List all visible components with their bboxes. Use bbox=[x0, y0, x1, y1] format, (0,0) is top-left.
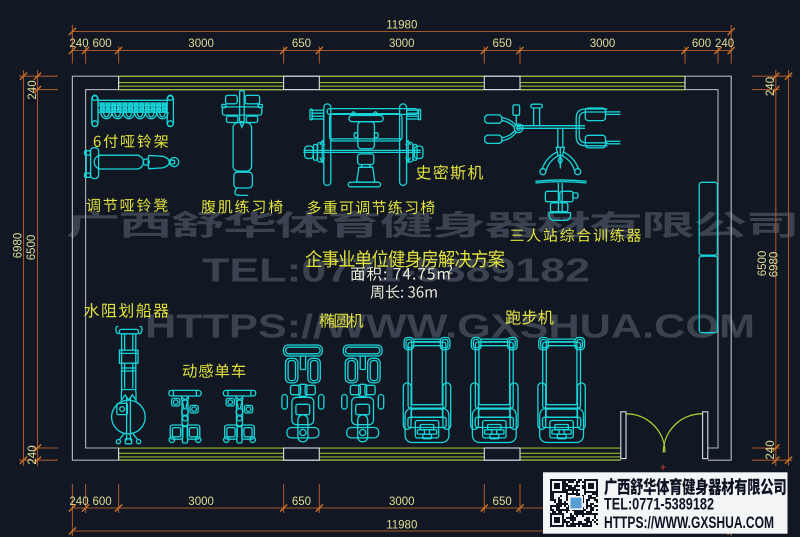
svg-text:TEL:0771-5389182: TEL:0771-5389182 bbox=[604, 495, 714, 514]
svg-text:240: 240 bbox=[765, 77, 777, 96]
svg-text:650: 650 bbox=[292, 38, 311, 50]
svg-text:240: 240 bbox=[69, 496, 88, 508]
svg-text:6500: 6500 bbox=[26, 235, 38, 261]
svg-text:600: 600 bbox=[692, 38, 711, 50]
svg-text:240: 240 bbox=[27, 445, 39, 464]
svg-text:240: 240 bbox=[69, 38, 88, 50]
svg-text:3000: 3000 bbox=[389, 38, 415, 50]
svg-text:3000: 3000 bbox=[389, 496, 415, 508]
svg-text:240: 240 bbox=[715, 38, 734, 50]
svg-text:3000: 3000 bbox=[590, 38, 616, 50]
svg-text:6980: 6980 bbox=[769, 252, 781, 278]
svg-text:11980: 11980 bbox=[386, 520, 417, 532]
svg-text:6980: 6980 bbox=[13, 233, 25, 259]
svg-text:3000: 3000 bbox=[188, 496, 214, 508]
svg-text:3000: 3000 bbox=[188, 38, 214, 50]
svg-text:650: 650 bbox=[493, 38, 512, 50]
svg-text:600: 600 bbox=[93, 496, 112, 508]
svg-text:650: 650 bbox=[493, 496, 512, 508]
svg-text:6500: 6500 bbox=[757, 251, 769, 277]
svg-text:HTTPS://WWW.GXSHUA.COM: HTTPS://WWW.GXSHUA.COM bbox=[604, 514, 774, 532]
svg-text:240: 240 bbox=[27, 80, 39, 99]
svg-text:11980: 11980 bbox=[386, 20, 417, 32]
svg-text:650: 650 bbox=[292, 496, 311, 508]
svg-text:600: 600 bbox=[93, 38, 112, 50]
svg-text:240: 240 bbox=[765, 440, 777, 459]
